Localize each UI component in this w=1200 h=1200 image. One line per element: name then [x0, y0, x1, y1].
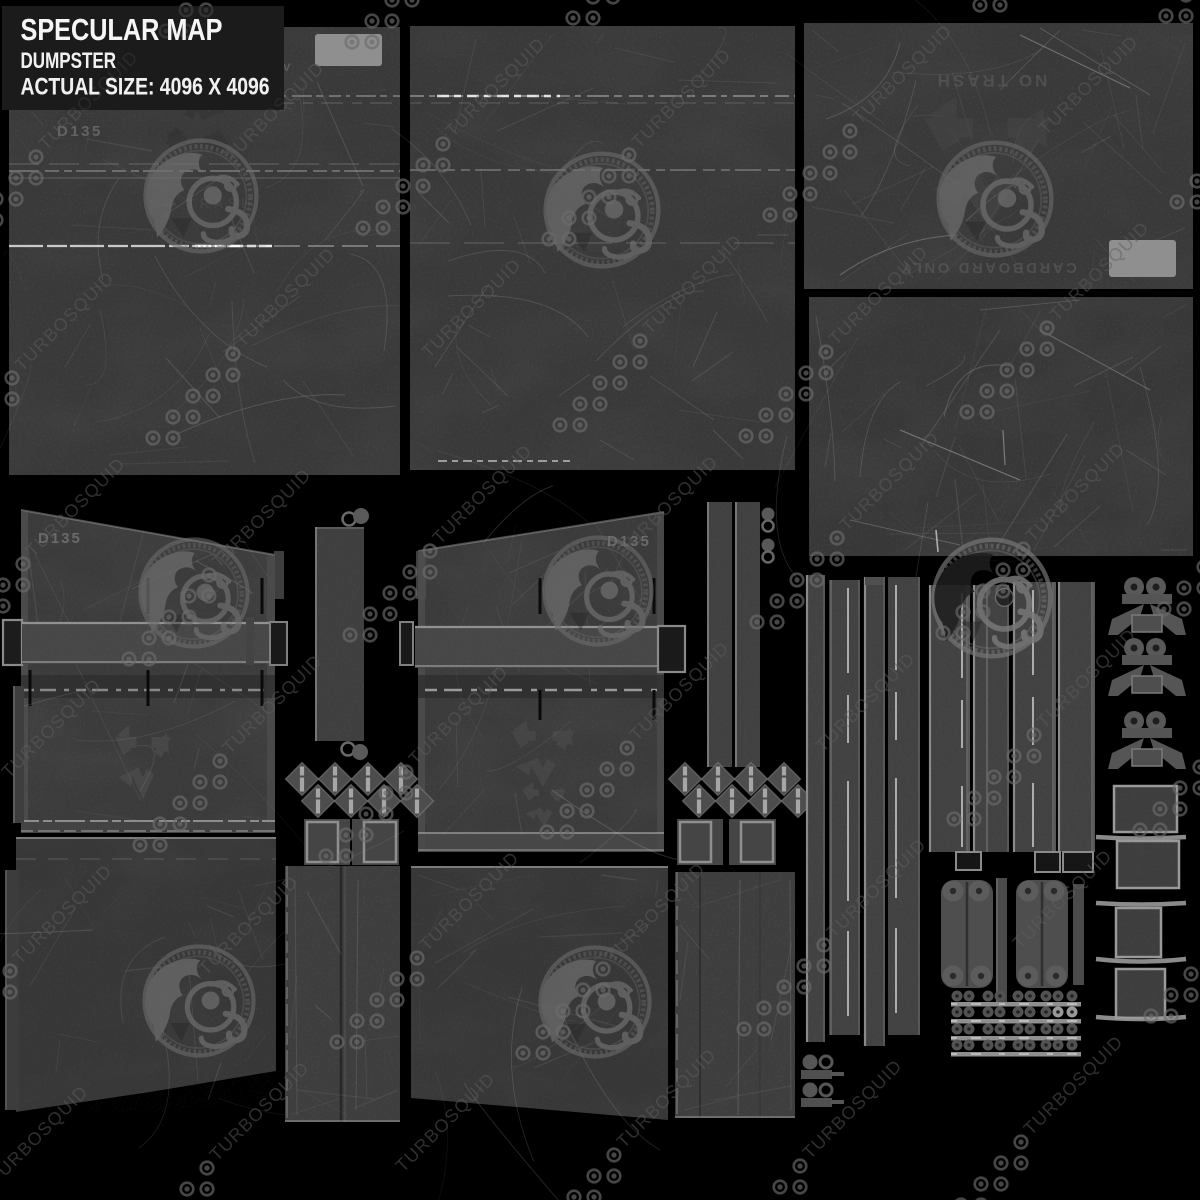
svg-text:SPECULAR MAP: SPECULAR MAP	[21, 13, 223, 47]
svg-text:DUMPSTER: DUMPSTER	[21, 48, 117, 73]
svg-text:ACTUAL SIZE: 4096 X 4096: ACTUAL SIZE: 4096 X 4096	[21, 74, 270, 100]
svg-text:V: V	[283, 62, 291, 74]
svg-text:NO TRASH: NO TRASH	[935, 71, 1048, 90]
